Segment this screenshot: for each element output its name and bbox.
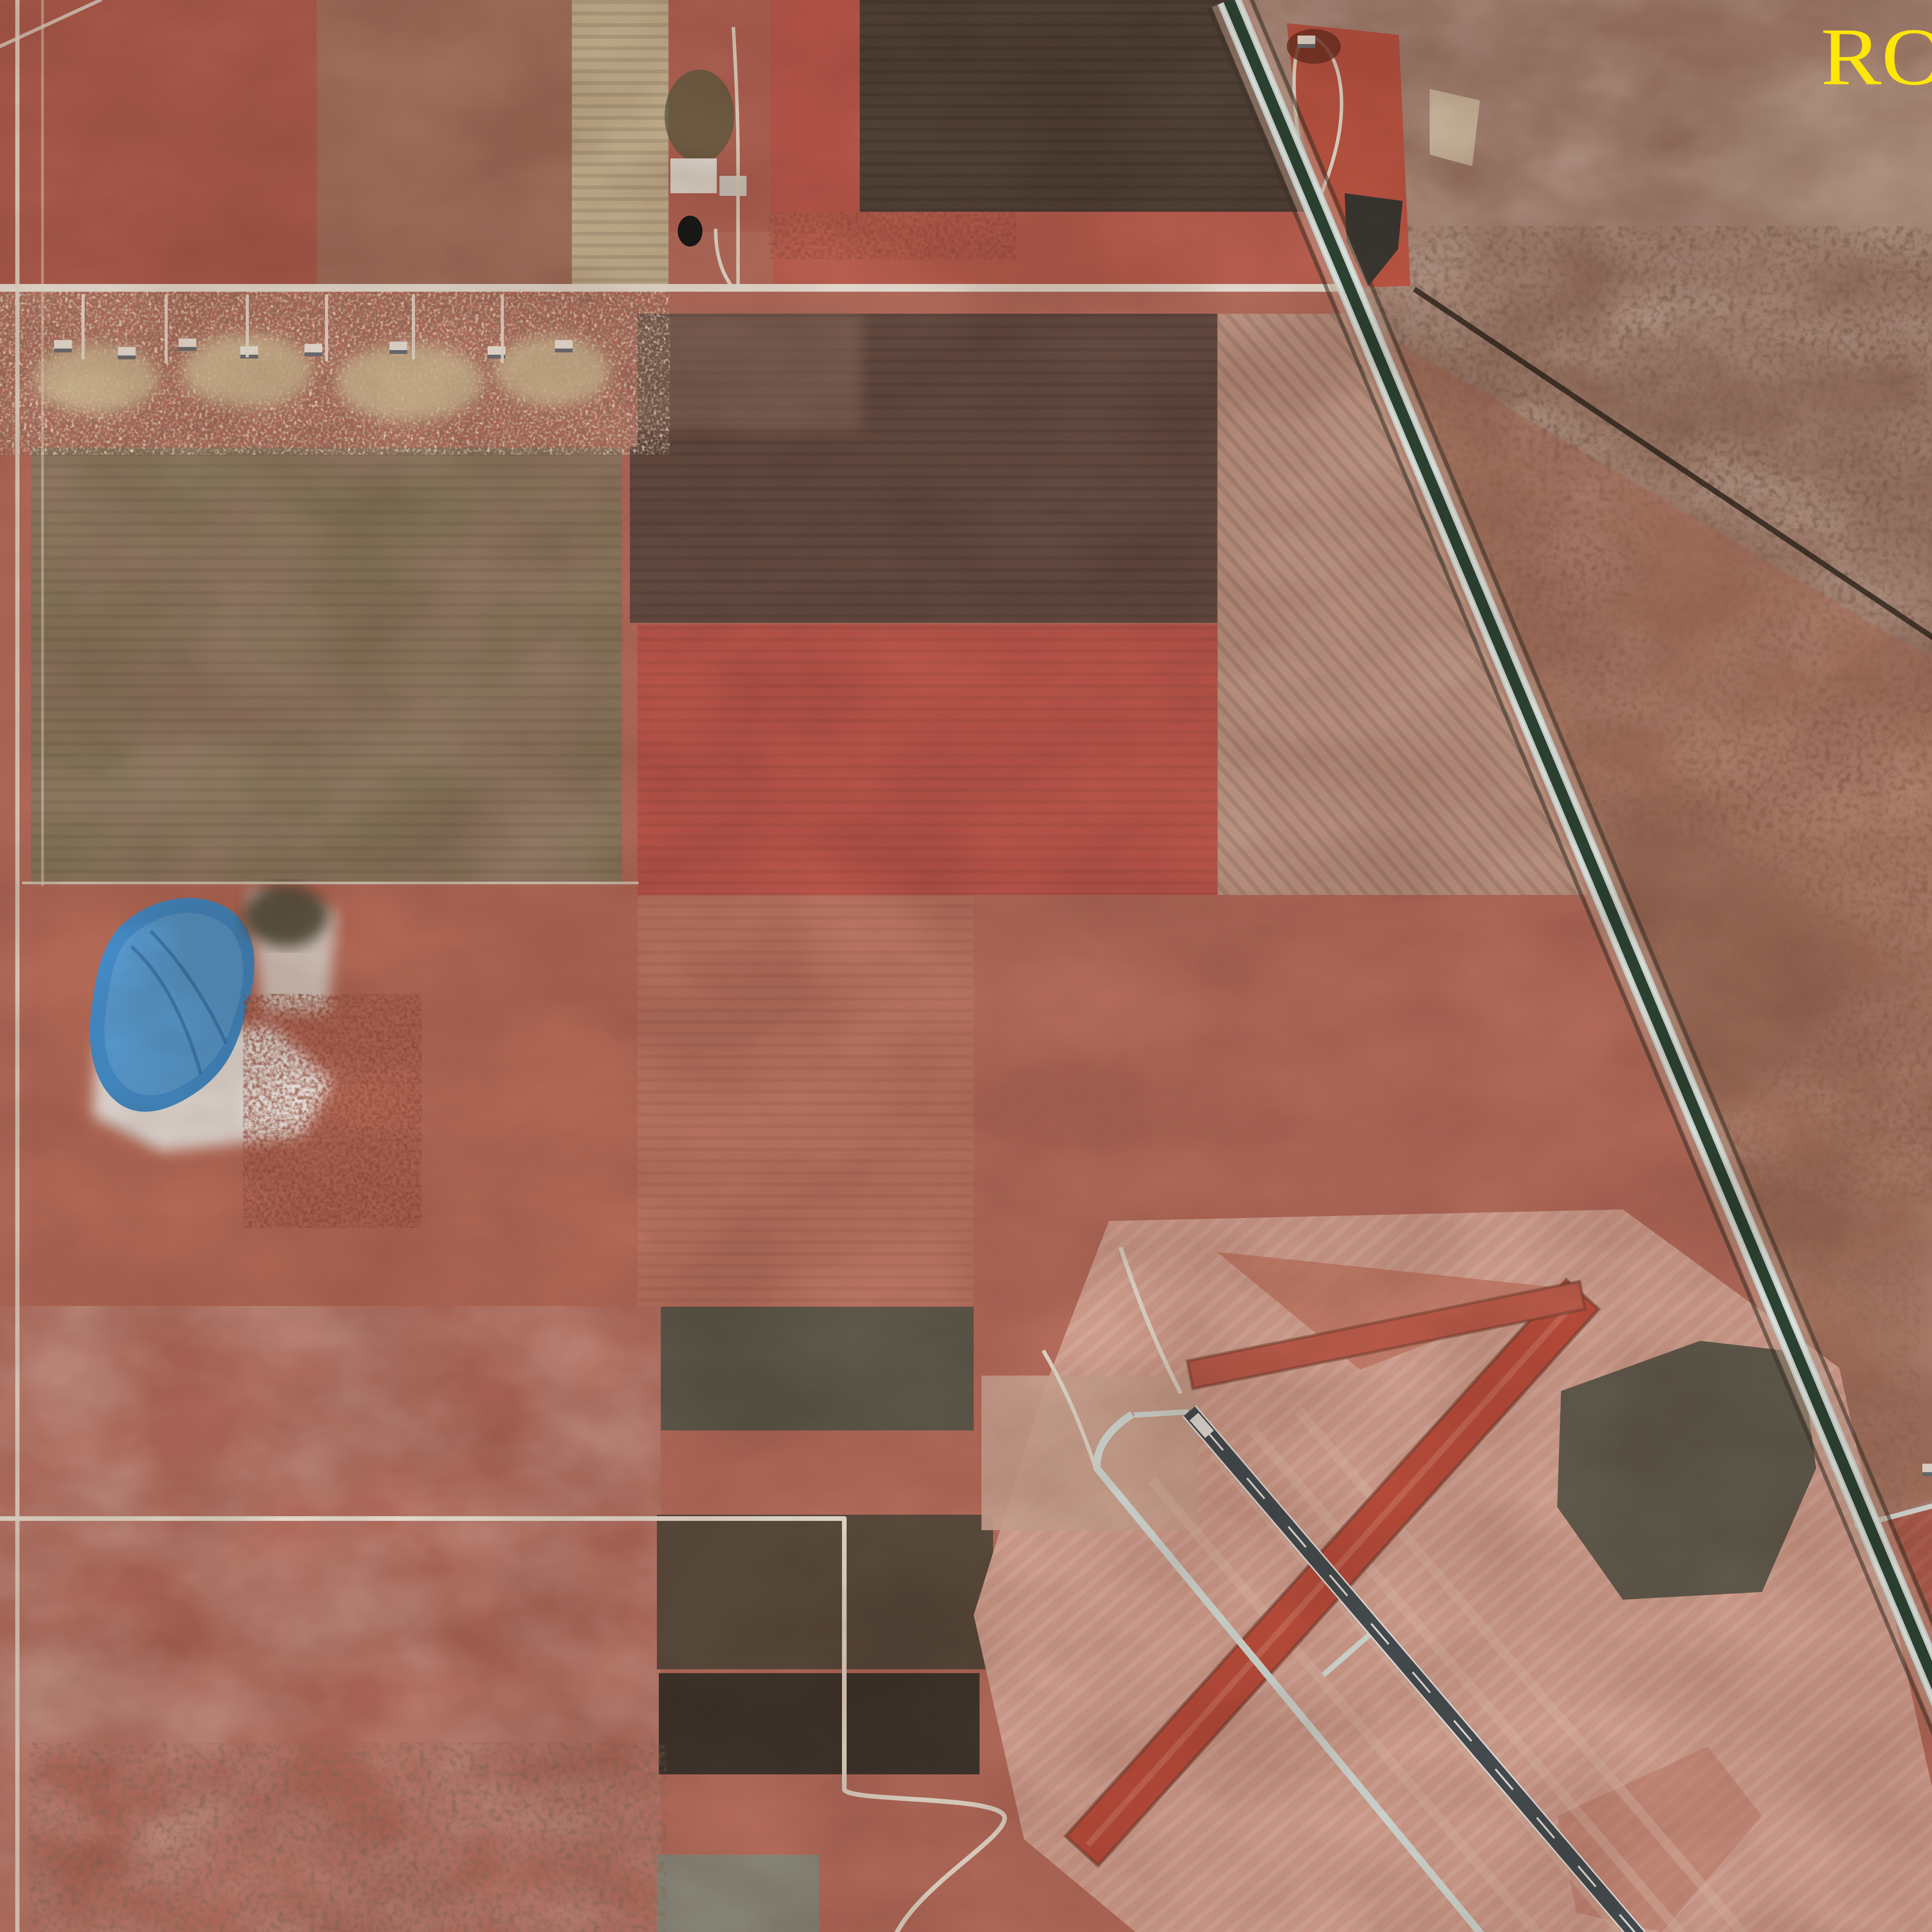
photo-id-overlay-text: ROS-32-003 stereo (1821, 11, 1932, 102)
aerial-photo: ROS-32-003 stereo STEREO PAIR FOR PHOTO … (0, 0, 1932, 1932)
film-grain-light (0, 0, 1932, 1932)
aerial-photo-canvas: ROS-32-003 stereo STEREO PAIR FOR PHOTO … (0, 0, 1932, 1932)
